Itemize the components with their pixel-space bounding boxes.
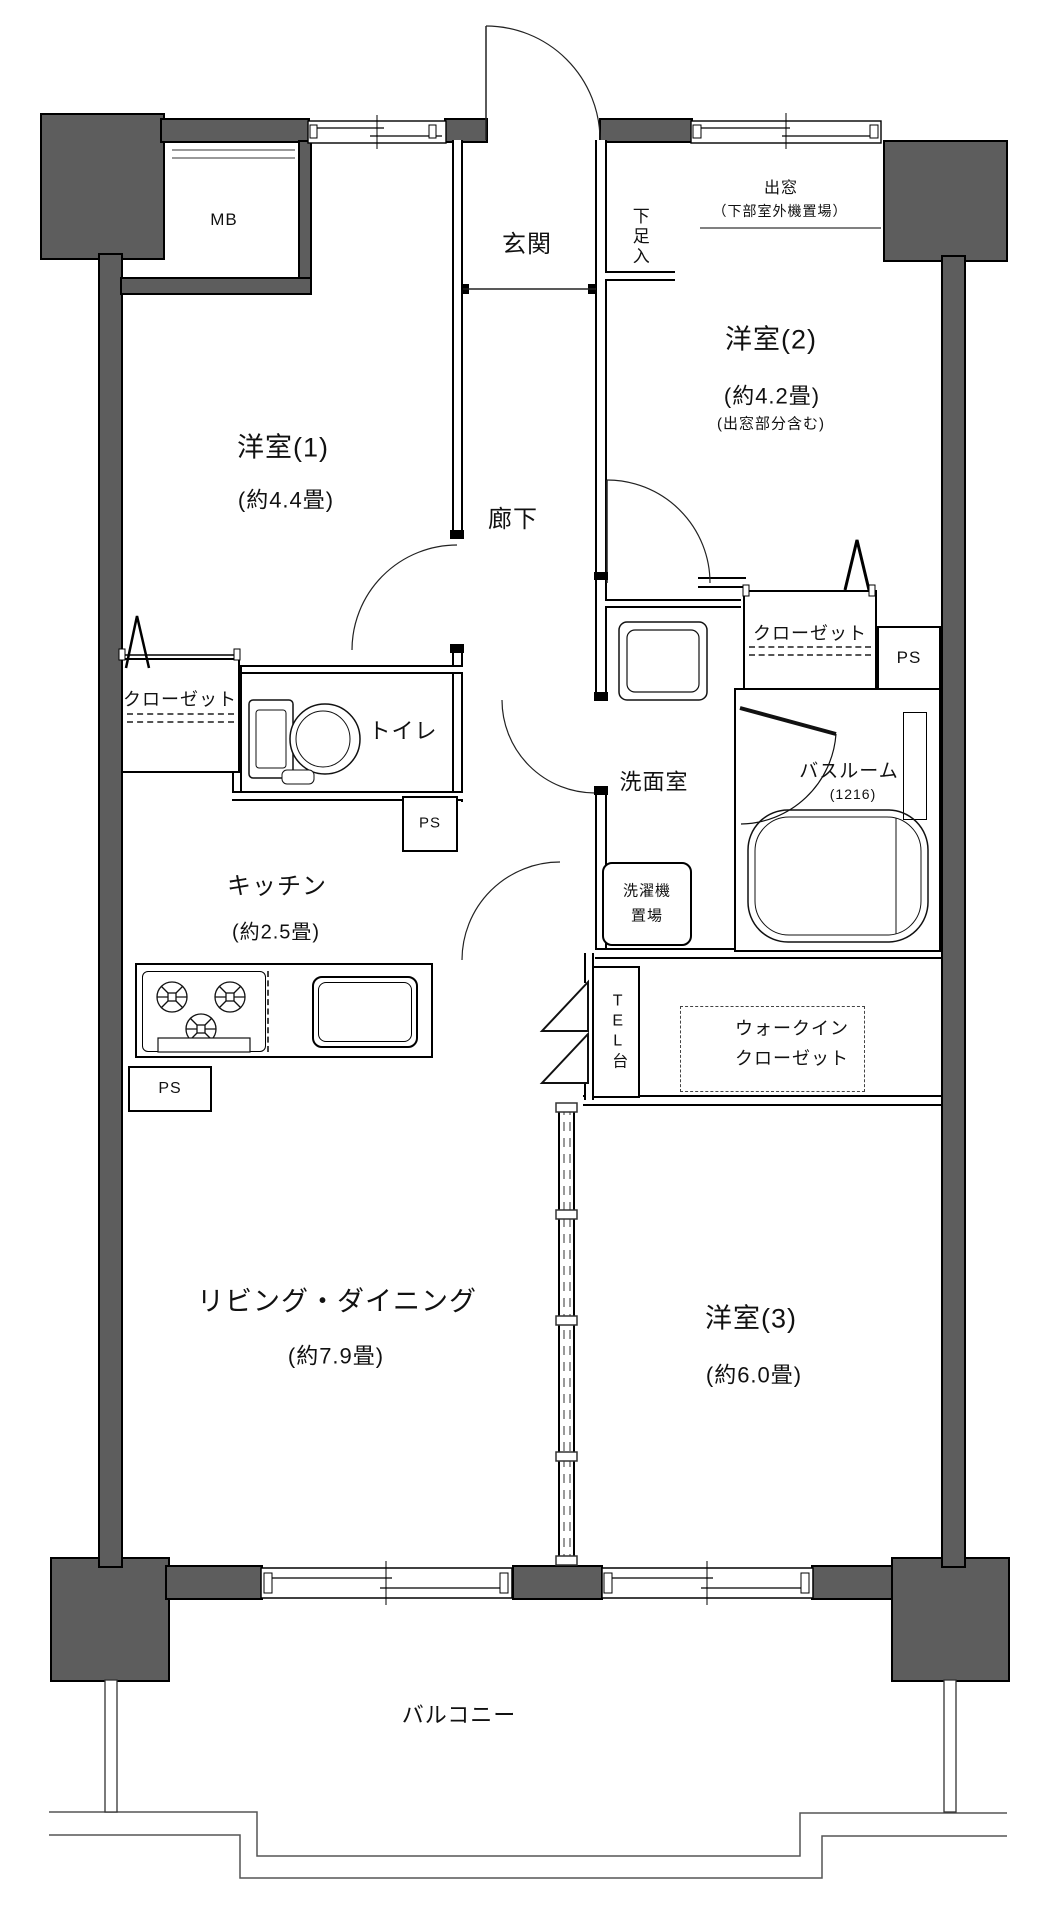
ps-kitchen-label: PS <box>419 814 441 831</box>
wall-corridor-right-upper <box>595 140 607 700</box>
closet-bedroom2-dash2 <box>749 654 871 656</box>
bathroom-label: バスルーム <box>799 761 898 783</box>
bedroom3-label: 洋室(3) <box>705 1303 797 1334</box>
bathroom-size: (1216) <box>830 786 876 802</box>
wall-bottom-b <box>512 1565 603 1600</box>
closet-bedroom1-box <box>121 658 240 773</box>
toilet-label: トイレ <box>368 718 437 743</box>
room-bedroom3 <box>575 1106 941 1565</box>
bedroom1-label: 洋室(1) <box>237 432 329 463</box>
corridor-door-arc-icon <box>462 862 560 960</box>
balcony-railing <box>49 1812 1007 1878</box>
bedroom2-note: (出窓部分含む) <box>717 415 825 432</box>
shoe-cabinet-label: 下足入 <box>629 207 649 267</box>
toilet-icon <box>249 700 360 784</box>
bay-window-label: 出窓 <box>764 180 798 198</box>
wall-bedroom2-door <box>698 577 746 588</box>
tel-stand-label: TEL台 <box>608 993 626 1072</box>
bedroom1-window-icon <box>308 115 446 149</box>
laundry-label-line1: 洗濯機 <box>623 882 671 899</box>
closet-bedroom2-dash1 <box>749 646 871 648</box>
bedroom1-size: (約4.4畳) <box>238 487 334 512</box>
closet-bedroom2-label: クローゼット <box>753 624 867 645</box>
wall-top-a <box>160 118 310 143</box>
wall-washroom-top <box>605 599 741 608</box>
bay-window-note: （下部室外機置場） <box>713 203 848 219</box>
ps-right-label: PS <box>897 648 922 668</box>
pillar-top-left <box>40 113 165 260</box>
stove-separator <box>267 971 269 1052</box>
meter-box-label: MB <box>210 210 238 230</box>
bedroom3-size: (約6.0畳) <box>706 1362 802 1387</box>
laundry-label-line2: 置場 <box>631 907 663 924</box>
washroom-label: 洗面室 <box>619 769 688 794</box>
wic-label-line2: クローゼット <box>735 1049 849 1070</box>
wall-bottom-c <box>811 1565 893 1600</box>
kitchen-size: (約2.5畳) <box>232 922 320 945</box>
balcony-label: バルコニー <box>402 1702 517 1727</box>
room-bedroom1 <box>123 295 452 655</box>
bedroom2-label: 洋室(2) <box>725 324 817 355</box>
sink-inner <box>318 982 412 1042</box>
partition-living-bedroom3 <box>558 1103 575 1565</box>
wall-left <box>98 253 123 1568</box>
floor-plan: MB 玄関 下足入 出窓 （下部室外機置場） 洋室(2) (約4.2畳) (出窓… <box>0 0 1042 1920</box>
wall-corridor-left-upper <box>452 140 463 538</box>
wall-bottom-a <box>165 1565 263 1600</box>
room-balcony <box>50 1600 1007 1812</box>
wall-mb-right <box>298 140 312 295</box>
entrance-door-arc-icon <box>486 26 600 140</box>
wall-mb-bottom <box>120 277 312 295</box>
bathroom-ledge <box>903 712 927 820</box>
stove-box <box>142 971 266 1052</box>
wall-toilet-top <box>232 665 463 674</box>
closet-bedroom1-label: クローゼット <box>123 690 237 711</box>
wall-top-c <box>599 118 693 143</box>
mb-door-lines <box>172 150 295 158</box>
wall-right <box>941 255 966 1568</box>
wic-label-line1: ウォークイン <box>735 1019 849 1040</box>
living-dining-size: (約7.9畳) <box>288 1343 384 1368</box>
wall-top-b <box>444 118 488 143</box>
bedroom2-size: (約4.2畳) <box>724 383 820 408</box>
bedroom3-window-icon <box>602 1561 813 1605</box>
closet-bedroom1-dash1 <box>127 713 234 715</box>
kitchen-label: キッチン <box>227 873 327 901</box>
entrance-label: 玄関 <box>502 231 552 259</box>
corridor-label: 廊下 <box>488 506 538 534</box>
closet-bedroom1-dash2 <box>127 721 234 723</box>
ps-bottom-left-label: PS <box>158 1080 181 1098</box>
living-window-icon <box>261 1561 512 1605</box>
living-dining-label: リビング・ダイニング <box>197 1286 477 1317</box>
room-corridor <box>463 293 595 860</box>
